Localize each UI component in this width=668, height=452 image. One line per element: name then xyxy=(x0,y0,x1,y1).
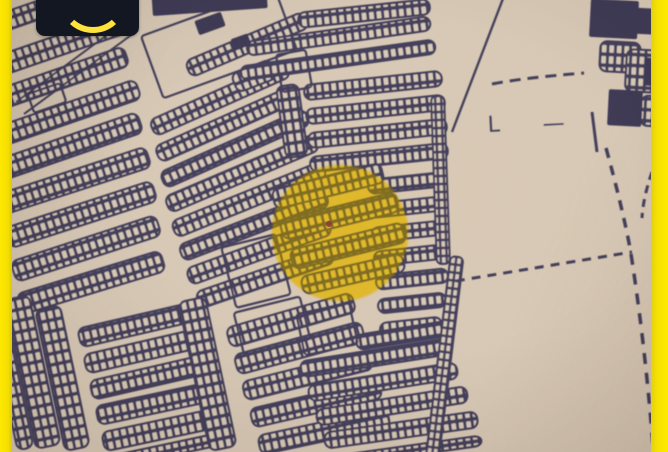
yellow-edge-left xyxy=(0,0,12,452)
plot-block xyxy=(607,89,643,127)
cadastral-map-svg: L — xyxy=(0,0,668,452)
highlight-circle-glow xyxy=(272,165,408,301)
plot-block xyxy=(377,292,446,313)
yellow-edge-right xyxy=(651,0,668,452)
map-canvas[interactable]: L — xyxy=(0,0,668,452)
highlight-annotation xyxy=(272,165,408,301)
map-symbols: L — xyxy=(487,111,565,138)
symbol-L: L xyxy=(487,112,501,138)
screenshot-root: L — SAKAN xyxy=(0,0,668,452)
brand-logo-badge: SAKAN xyxy=(36,0,139,36)
plot-block xyxy=(151,0,267,16)
plot-block xyxy=(306,95,446,124)
plot-block xyxy=(308,119,448,148)
plot-block xyxy=(431,96,450,264)
smile-arc-icon xyxy=(61,0,125,33)
symbol-dash: — xyxy=(542,111,565,137)
plot-block xyxy=(304,71,443,100)
location-marker-dot xyxy=(326,221,332,227)
